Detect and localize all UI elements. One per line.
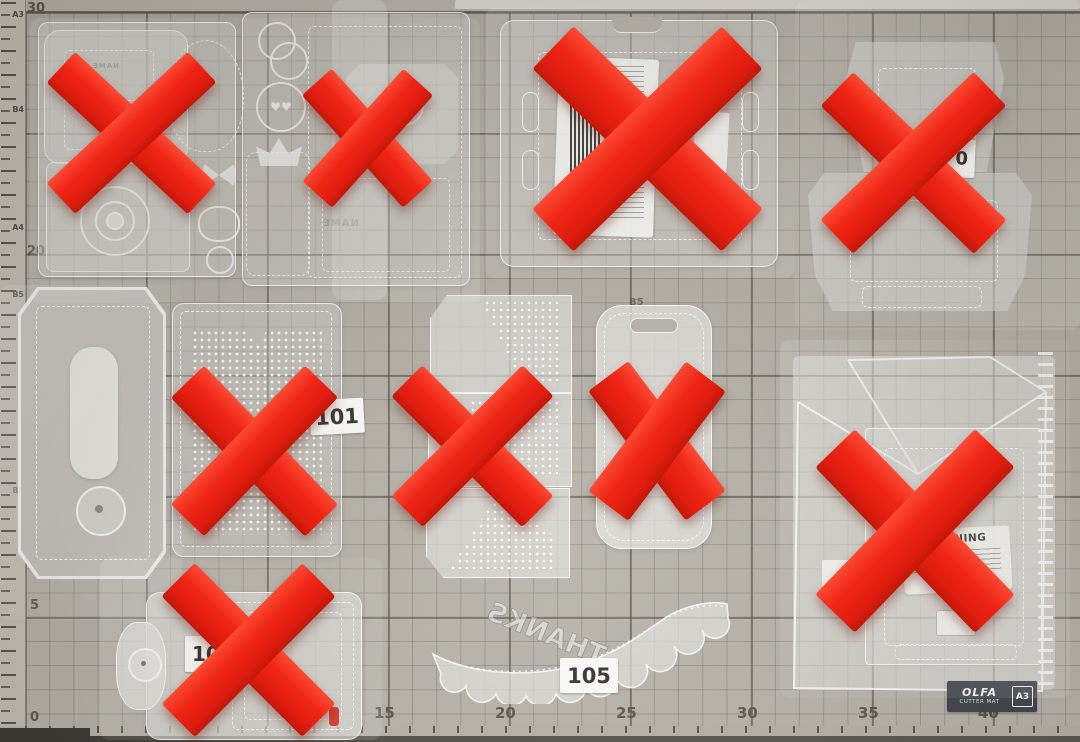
mat-size-a3-box: A3 [1012, 686, 1033, 707]
die-5-button-dot [95, 505, 103, 513]
die-9-bottom-stitch [895, 644, 1017, 660]
mat-left-0: 0 [30, 710, 39, 725]
sticker-die-11: 105 [560, 658, 618, 693]
mat-bottom-30: 30 [737, 704, 758, 722]
die-10-hole-left-dot [141, 661, 146, 666]
ruler-label-a3: A3 [0, 10, 24, 19]
ruler-label-a4: A4 [0, 223, 24, 232]
red-x-mark-1 [45, 52, 217, 214]
ruler-ticks-short [1, 14, 10, 740]
bottom-left-shadow [0, 728, 90, 742]
mat-bottom-35: 35 [858, 704, 879, 722]
olfa-cutter-mat-badge: OLFA CUTTER MAT A3 [947, 681, 1037, 712]
red-x-mark-5 [168, 362, 340, 539]
ruler-label-b4: B4 [0, 105, 24, 114]
die-4-tray-flap [862, 286, 982, 308]
mat-bottom-15: 15 [374, 704, 395, 722]
photo-craft-dies-on-cutting-mat: A3 B4 A4 B5 B5 30 20 15 10 5 0 15 20 25 … [0, 0, 1080, 742]
olfa-brand-logo: OLFA [962, 687, 997, 698]
mat-bottom-20: 20 [495, 704, 516, 722]
mat-bottom-25: 25 [616, 704, 637, 722]
red-x-mark-4 [818, 72, 1008, 254]
red-x-mark-9 [160, 560, 338, 740]
mat-left-30: 30 [27, 1, 45, 16]
cutter-mat-text: CUTTER MAT [960, 700, 1000, 706]
ruler-label-b5: B5 [0, 290, 24, 299]
mat-left-5: 5 [30, 598, 39, 613]
packaging-top-strip [455, 0, 1080, 9]
red-x-mark-3 [530, 25, 765, 253]
die-5-pill [70, 347, 118, 479]
red-x-mark-7 [585, 345, 730, 537]
die-8-slot [630, 318, 678, 333]
red-x-mark-6 [390, 362, 555, 530]
red-x-mark-2 [300, 62, 435, 214]
die-9-packaging-zigzag [1038, 352, 1053, 692]
red-x-mark-8 [812, 425, 1017, 637]
